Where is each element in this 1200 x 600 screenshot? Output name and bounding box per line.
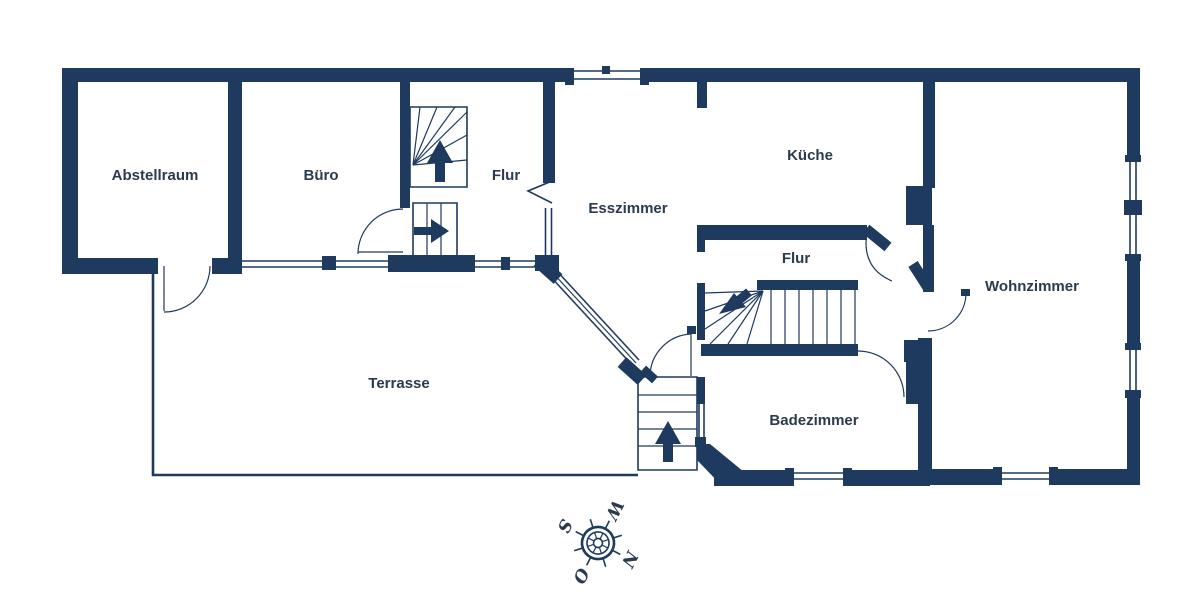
compass-south-label: S	[552, 516, 575, 536]
window-buero-south-1	[242, 261, 322, 267]
door-flur-opening-chevron	[528, 181, 552, 203]
room-label-flur-lower: Flur	[782, 250, 810, 267]
window-buero-south-2	[336, 261, 388, 267]
room-label-wohnzimmer: Wohnzimmer	[985, 278, 1079, 295]
room-label-flur-upper: Flur	[492, 167, 520, 184]
window-flur-esszimmer-panel	[546, 208, 552, 258]
room-label-kueche: Küche	[787, 147, 833, 164]
compass-east-label: O	[568, 564, 593, 586]
compass-north-label: N	[616, 547, 642, 572]
windows	[242, 71, 1136, 479]
door-abstellraum-terrasse	[164, 266, 210, 312]
door-wohnzimmer	[913, 264, 970, 331]
window-badezimmer-south	[794, 473, 843, 479]
window-stair-badezimmer	[699, 404, 704, 437]
stairs-up-arrow-icon	[427, 140, 453, 182]
floor-plan-svg: Abstellraum Büro Flur Esszimmer Küche Fl…	[0, 0, 1200, 600]
walls	[62, 66, 1142, 486]
room-label-terrasse: Terrasse	[368, 375, 429, 392]
compass-west-label: W	[600, 497, 627, 525]
door-buero	[358, 209, 403, 254]
stairs-right-arrow-icon	[414, 219, 449, 243]
window-wohnzimmer-east-1	[1130, 162, 1136, 200]
room-label-abstellraum: Abstellraum	[112, 167, 199, 184]
room-label-badezimmer: Badezimmer	[769, 412, 858, 429]
window-esszimmer-diagonal	[538, 261, 642, 380]
window-wohnzimmer-south	[1002, 473, 1049, 479]
room-label-esszimmer: Esszimmer	[588, 200, 667, 217]
door-exterior-stairs	[643, 326, 696, 380]
window-wohnzimmer-east-3	[1130, 350, 1136, 390]
floor-plan-page: Abstellraum Büro Flur Esszimmer Küche Fl…	[0, 0, 1200, 600]
room-label-buero: Büro	[304, 167, 339, 184]
staircase-upper-straight	[413, 203, 457, 263]
compass-rose-icon: N S W O	[535, 480, 659, 600]
staircase-upper-winder	[410, 107, 467, 187]
staircase-exterior	[638, 377, 697, 470]
door-kueche	[866, 229, 892, 281]
door-badezimmer	[858, 351, 904, 397]
stairs-up-arrow-icon	[655, 421, 681, 462]
staircase-main	[705, 290, 855, 344]
window-wohnzimmer-east-2	[1130, 215, 1136, 254]
